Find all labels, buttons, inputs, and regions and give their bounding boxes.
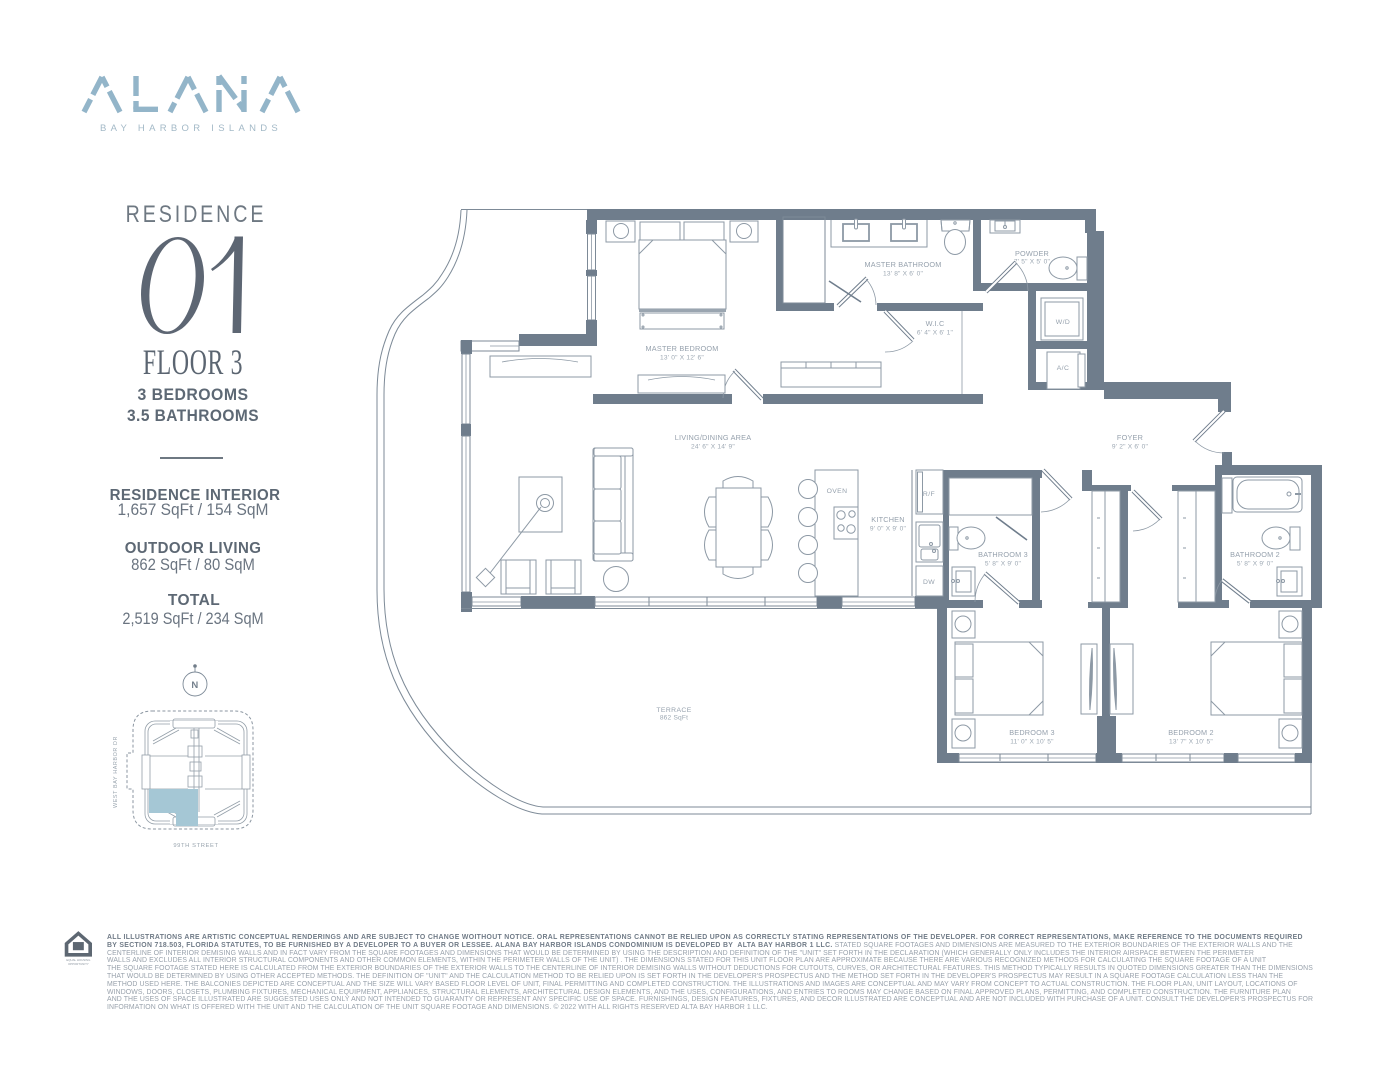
svg-text:5' 8" X 9' 0": 5' 8" X 9' 0" (985, 561, 1022, 568)
svg-text:N: N (191, 680, 198, 691)
svg-text:BEDROOM 2: BEDROOM 2 (1168, 728, 1214, 737)
svg-text:OVEN: OVEN (827, 488, 848, 495)
svg-text:13' 0" X 12' 6": 13' 0" X 12' 6" (660, 355, 704, 362)
svg-text:BATHROOM 2: BATHROOM 2 (1230, 550, 1280, 559)
svg-text:24' 6" X 14' 9": 24' 6" X 14' 9" (691, 444, 735, 451)
svg-text:9' 2" X 6' 0": 9' 2" X 6' 0" (1112, 444, 1149, 451)
svg-text:13' 8" X 6' 0": 13' 8" X 6' 0" (883, 271, 924, 278)
svg-text:R/F: R/F (923, 491, 935, 498)
svg-text:5' 8" X 9' 0": 5' 8" X 9' 0" (1237, 561, 1274, 568)
svg-text:WEST BAY HARBOR DR: WEST BAY HARBOR DR (113, 736, 119, 808)
svg-text:A/C: A/C (1057, 365, 1070, 372)
svg-text:FOYER: FOYER (1117, 433, 1143, 442)
svg-text:TERRACE: TERRACE (656, 707, 691, 714)
svg-text:KITCHEN: KITCHEN (871, 515, 904, 524)
svg-text:11' 0" X 10' 5": 11' 0" X 10' 5" (1010, 739, 1054, 746)
svg-text:DW: DW (923, 579, 935, 586)
svg-text:13' 7" X 10' 5": 13' 7" X 10' 5" (1169, 739, 1213, 746)
svg-text:W.I.C: W.I.C (926, 319, 945, 328)
svg-text:BATHROOM 3: BATHROOM 3 (978, 550, 1028, 559)
svg-text:LIVING/DINING AREA: LIVING/DINING AREA (675, 433, 752, 442)
svg-text:862 SqFt: 862 SqFt (660, 715, 688, 722)
svg-text:99TH STREET: 99TH STREET (173, 843, 218, 849)
svg-text:7' 5" X 5' 0": 7' 5" X 5' 0" (1014, 259, 1051, 266)
svg-text:MASTER BEDROOM: MASTER BEDROOM (646, 344, 719, 353)
svg-text:MASTER BATHROOM: MASTER BATHROOM (864, 260, 941, 269)
svg-text:6' 4" X 6' 1": 6' 4" X 6' 1" (917, 330, 954, 337)
svg-text:9' 0" X 9' 0": 9' 0" X 9' 0" (870, 526, 907, 533)
svg-text:BEDROOM 3: BEDROOM 3 (1009, 728, 1055, 737)
svg-text:POWDER: POWDER (1015, 249, 1049, 258)
svg-text:OPPORTUNITY: OPPORTUNITY (68, 962, 89, 966)
svg-text:W/D: W/D (1056, 319, 1070, 326)
